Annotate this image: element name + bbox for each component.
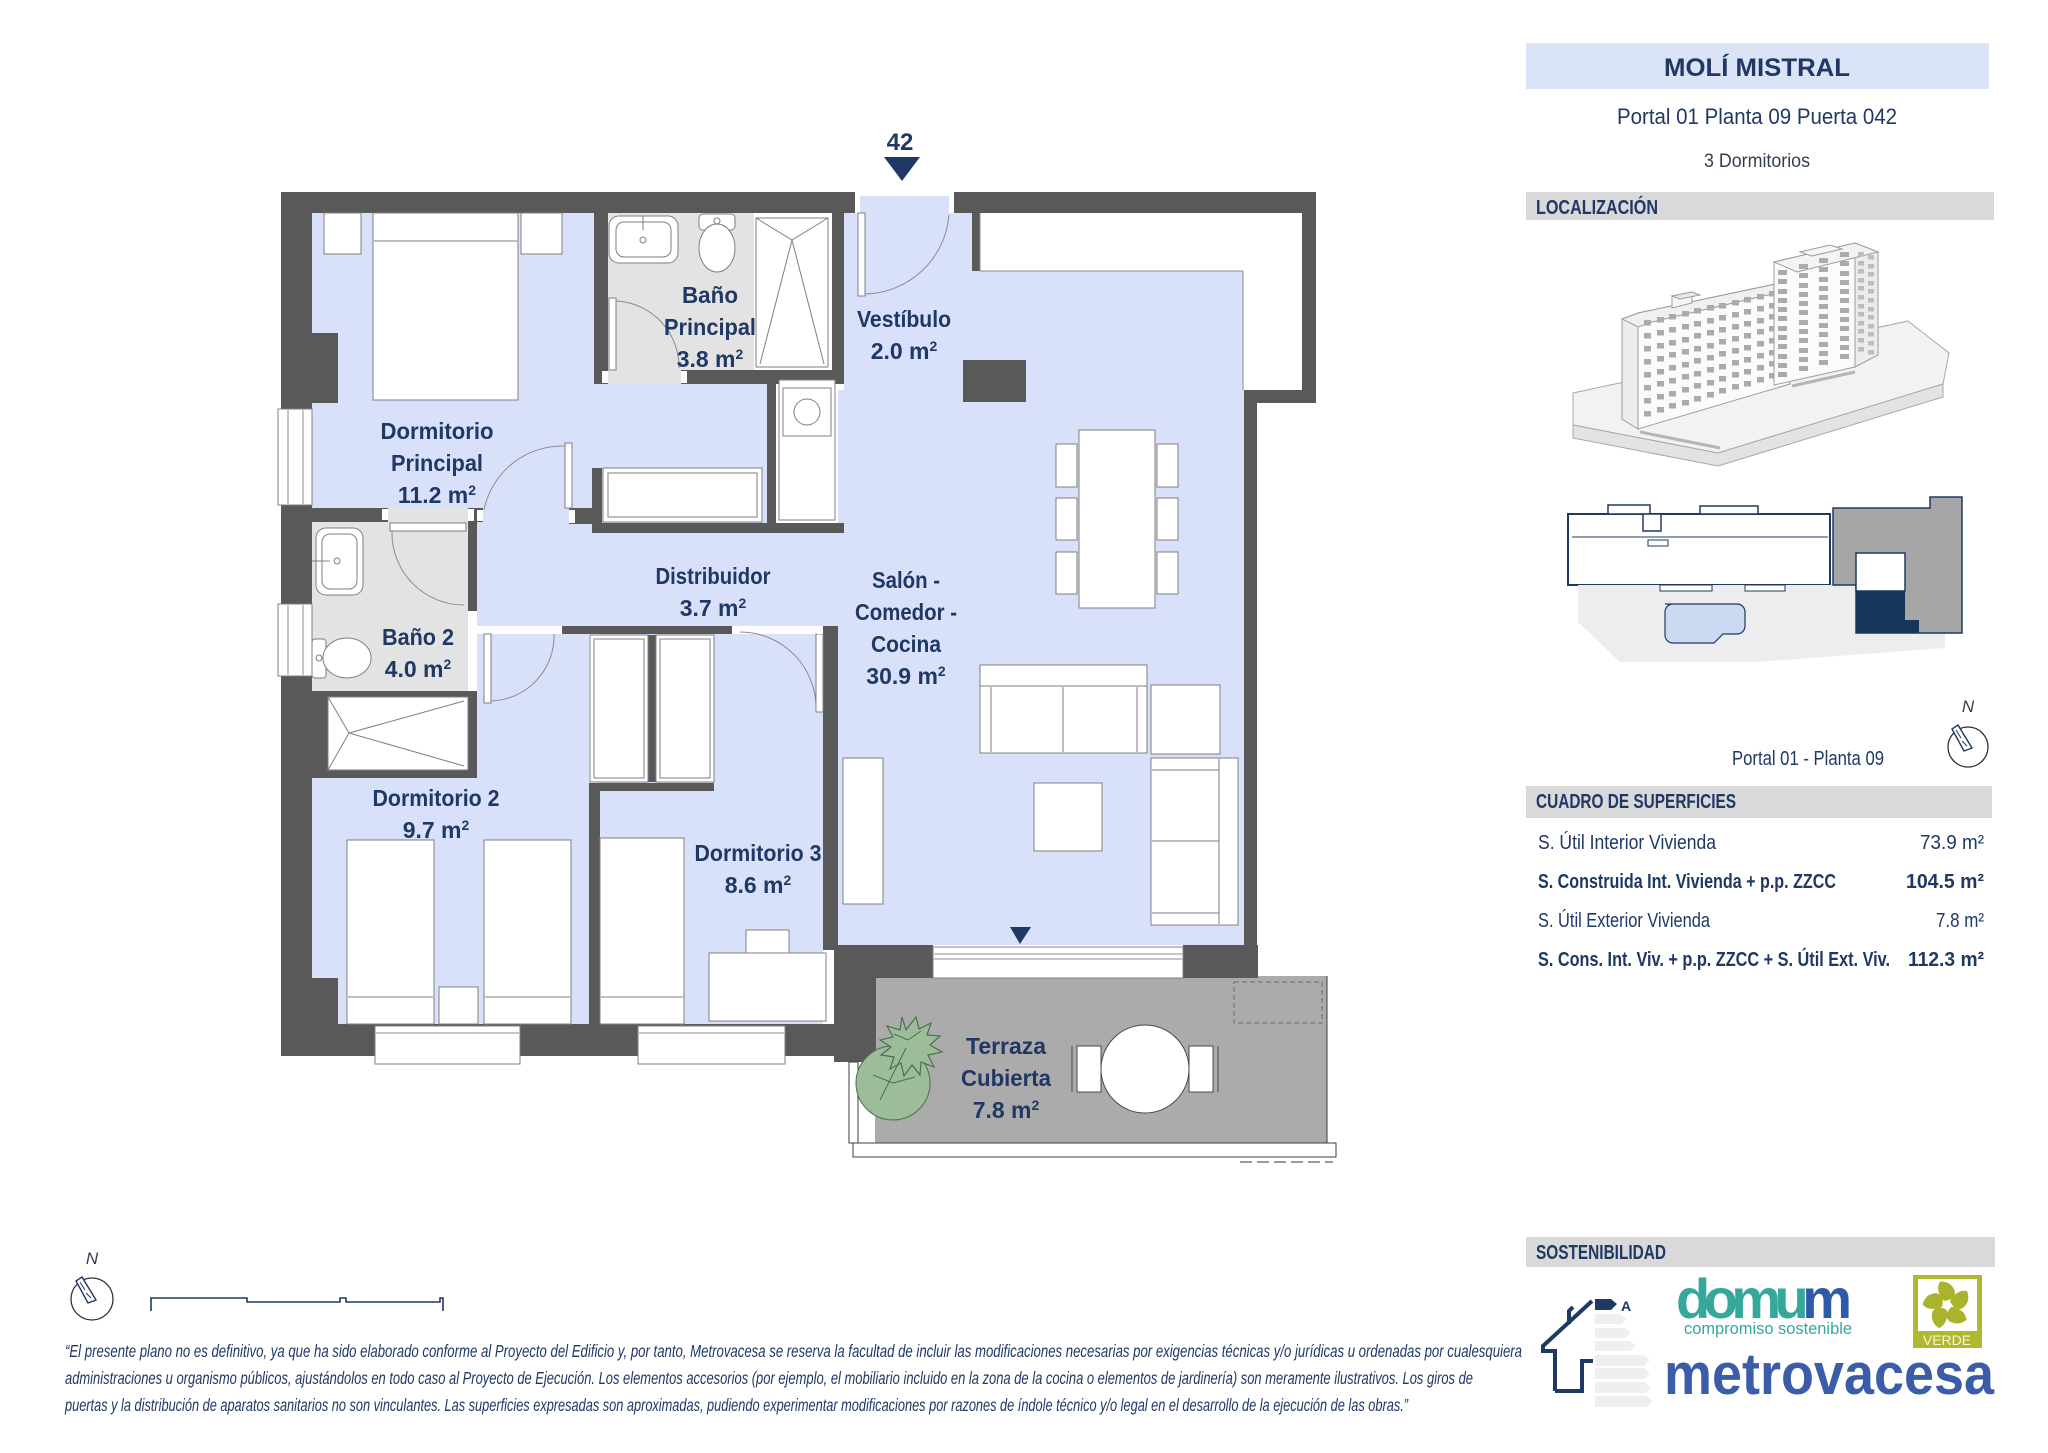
svg-text:N: N [86,1249,99,1268]
svg-text:73.9 m²: 73.9 m² [1920,832,1984,854]
svg-text:42: 42 [887,129,914,156]
svg-text:Baño: Baño [682,282,738,308]
svg-text:Principal: Principal [664,314,756,340]
svg-text:Principal: Principal [391,450,483,476]
svg-text:3.7 m2: 3.7 m2 [680,595,747,621]
svg-text:Vestíbulo: Vestíbulo [857,306,951,332]
svg-text:11.2 m2: 11.2 m2 [398,482,476,508]
svg-text:3.8 m2: 3.8 m2 [677,346,744,372]
svg-text:S. Útil Interior Vivienda: S. Útil Interior Vivienda [1538,831,1717,854]
svg-text:8.6 m2: 8.6 m2 [725,872,792,898]
svg-text:7.8 m²: 7.8 m² [1936,910,1984,932]
svg-text:“El presente plano no es defin: “El presente plano no es definitivo, ya … [65,1341,1522,1361]
svg-text:Baño 2: Baño 2 [382,624,454,650]
svg-text:N: N [1962,697,1975,716]
svg-text:7.8 m2: 7.8 m2 [973,1097,1040,1123]
svg-text:compromiso sostenible: compromiso sostenible [1684,1319,1852,1338]
svg-text:Salón -: Salón - [872,567,940,593]
svg-text:Dormitorio 2: Dormitorio 2 [373,785,500,811]
svg-text:A: A [1621,1298,1631,1314]
svg-text:S. Cons. Int. Viv. + p.p. ZZCC: S. Cons. Int. Viv. + p.p. ZZCC + S. Útil… [1538,947,1890,971]
svg-text:CUADRO DE SUPERFICIES: CUADRO DE SUPERFICIES [1536,791,1736,813]
svg-text:3 Dormitorios: 3 Dormitorios [1704,151,1810,172]
svg-text:Comedor -: Comedor - [855,599,957,625]
svg-text:4.0 m2: 4.0 m2 [385,656,452,682]
svg-text:9.7 m2: 9.7 m2 [403,817,470,843]
svg-text:Portal 01 Planta 09 Puerta 042: Portal 01 Planta 09 Puerta 042 [1617,104,1897,129]
svg-text:Dormitorio: Dormitorio [381,418,494,444]
svg-text:S. Construida Int. Vivienda +: S. Construida Int. Vivienda + p.p. ZZCC [1538,871,1836,893]
svg-text:Cocina: Cocina [871,631,941,657]
svg-text:Dormitorio 3: Dormitorio 3 [695,840,822,866]
svg-text:Portal 01 - Planta 09: Portal 01 - Planta 09 [1732,748,1884,770]
svg-text:30.9 m2: 30.9 m2 [866,663,946,689]
svg-text:puertas y la distribución de a: puertas y la distribución de aparatos sa… [64,1395,1409,1415]
svg-text:SOSTENIBILIDAD: SOSTENIBILIDAD [1536,1242,1666,1264]
svg-text:2.0 m2: 2.0 m2 [871,338,938,364]
svg-text:104.5 m²: 104.5 m² [1906,871,1984,893]
svg-text:MOLÍ MISTRAL: MOLÍ MISTRAL [1664,53,1850,82]
svg-text:112.3 m²: 112.3 m² [1908,949,1984,971]
svg-text:administraciones u organismo p: administraciones u organismo públicos, a… [65,1368,1473,1388]
svg-text:Cubierta: Cubierta [961,1065,1051,1091]
svg-text:metrovacesa: metrovacesa [1664,1342,1995,1407]
svg-text:S. Útil Exterior Vivienda: S. Útil Exterior Vivienda [1538,909,1711,932]
svg-text:Terraza: Terraza [966,1033,1046,1059]
svg-text:Distribuidor: Distribuidor [656,563,771,589]
svg-text:LOCALIZACIÓN: LOCALIZACIÓN [1536,195,1658,219]
